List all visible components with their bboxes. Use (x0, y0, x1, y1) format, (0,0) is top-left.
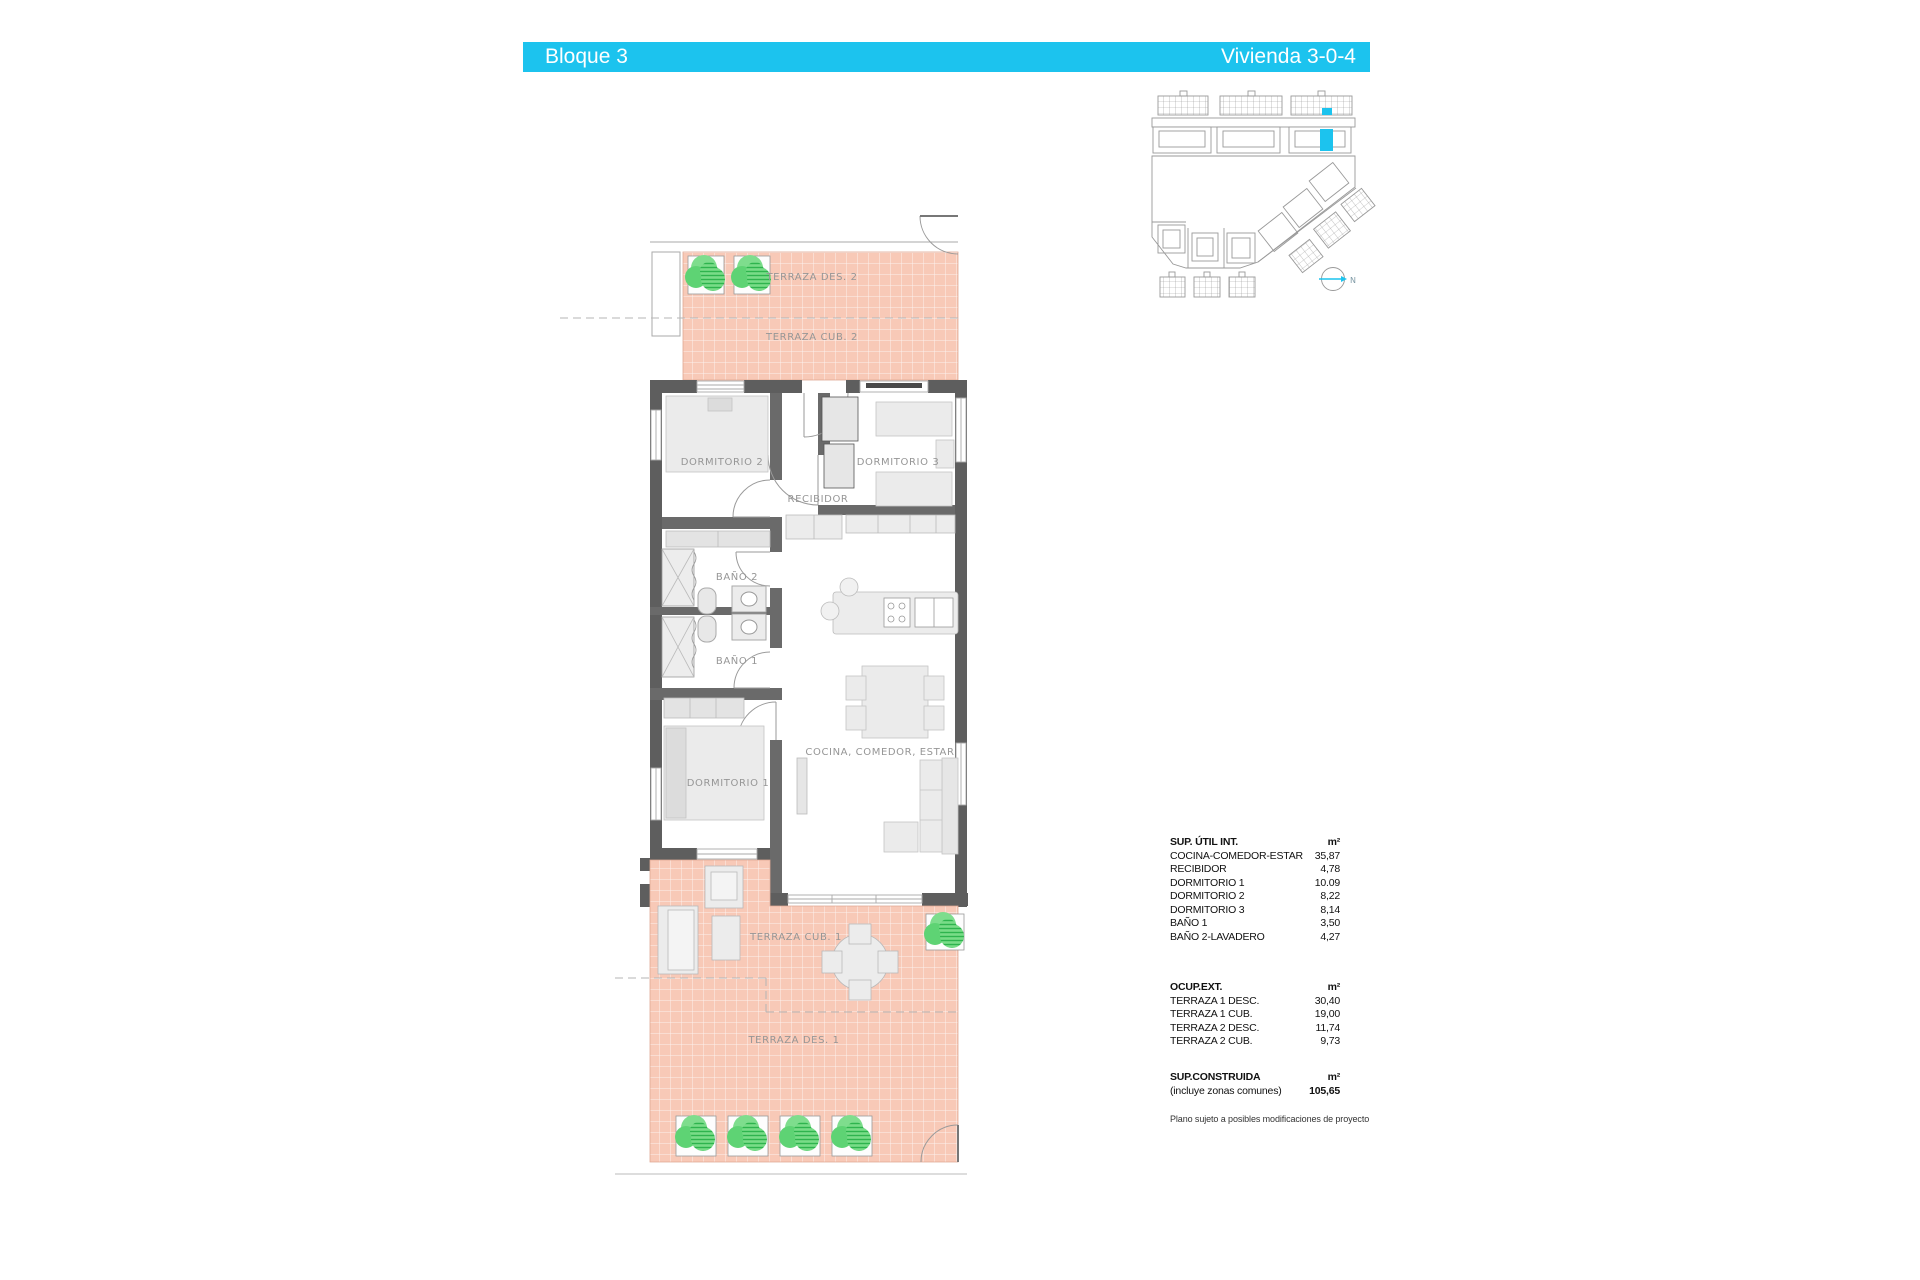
area-row: COCINA-COMEDOR-ESTAR35,87 (1170, 850, 1340, 864)
room-label-dormitorio-1: DORMITORIO 1 (687, 778, 770, 789)
terrace-2 (560, 216, 958, 380)
room-label-terraza-cub-1: TERRAZA CUB. 1 (749, 932, 842, 943)
area-row: BAÑO 13,50 (1170, 917, 1340, 931)
highlighted-unit-marker (1322, 108, 1332, 115)
floor-plan-drawing: TERRAZA DES. 2 TERRAZA CUB. 2 DORMITORIO… (0, 0, 1920, 1280)
room-label-terraza-des-2: TERRAZA DES. 2 (765, 272, 857, 283)
area-row: DORMITORIO 110.09 (1170, 877, 1340, 891)
table-title: OCUP.EXT. (1170, 981, 1222, 995)
area-row: TERRAZA 2 CUB.9,73 (1170, 1035, 1340, 1049)
room-label-terraza-cub-2: TERRAZA CUB. 2 (765, 332, 858, 343)
area-row: RECIBIDOR4,78 (1170, 863, 1340, 877)
table-unit: m² (1328, 981, 1340, 995)
table-title: SUP. ÚTIL INT. (1170, 836, 1238, 850)
room-label-dormitorio-3: DORMITORIO 3 (857, 457, 940, 468)
planter-box (652, 252, 680, 336)
table-ocup-ext: OCUP.EXT. m² TERRAZA 1 DESC.30,40 TERRAZ… (1170, 981, 1340, 1049)
north-arrow-icon: N (1319, 268, 1356, 291)
table-title: SUP.CONSTRUIDA (1170, 1071, 1260, 1085)
room-label-dormitorio-2: DORMITORIO 2 (681, 457, 764, 468)
area-row: DORMITORIO 38,14 (1170, 904, 1340, 918)
site-plan: N (1152, 91, 1375, 297)
area-row: (incluye zonas comunes) 105,65 (1170, 1085, 1340, 1099)
table-sup-util-int: SUP. ÚTIL INT. m² COCINA-COMEDOR-ESTAR35… (1170, 836, 1340, 944)
terrace-1 (615, 860, 967, 1174)
table-unit: m² (1328, 836, 1340, 850)
room-label-bano-2: BAÑO 2 (716, 570, 758, 583)
table-sup-construida: SUP.CONSTRUIDA m² (incluye zonas comunes… (1170, 1071, 1340, 1098)
area-row: TERRAZA 2 DESC.11,74 (1170, 1022, 1340, 1036)
door-arc (920, 216, 958, 254)
room-label-terraza-des-1: TERRAZA DES. 1 (747, 1035, 839, 1046)
table-header: SUP.CONSTRUIDA m² (1170, 1071, 1340, 1085)
room-label-cocina-comedor-estar: COCINA, COMEDOR, ESTAR (805, 747, 954, 758)
area-row: TERRAZA 1 CUB.19,00 (1170, 1008, 1340, 1022)
north-label: N (1350, 276, 1356, 285)
table-header: OCUP.EXT. m² (1170, 981, 1340, 995)
highlighted-unit (1320, 129, 1333, 151)
area-row: DORMITORIO 28,22 (1170, 890, 1340, 904)
disclaimer-note: Plano sujeto a posibles modificaciones d… (1170, 1114, 1369, 1124)
room-label-bano-1: BAÑO 1 (716, 654, 758, 667)
table-unit: m² (1328, 1071, 1340, 1085)
area-row: BAÑO 2-LAVADERO4,27 (1170, 931, 1340, 945)
room-label-recibidor: RECIBIDOR (788, 494, 849, 505)
area-row: TERRAZA 1 DESC.30,40 (1170, 995, 1340, 1009)
table-header: SUP. ÚTIL INT. m² (1170, 836, 1340, 850)
